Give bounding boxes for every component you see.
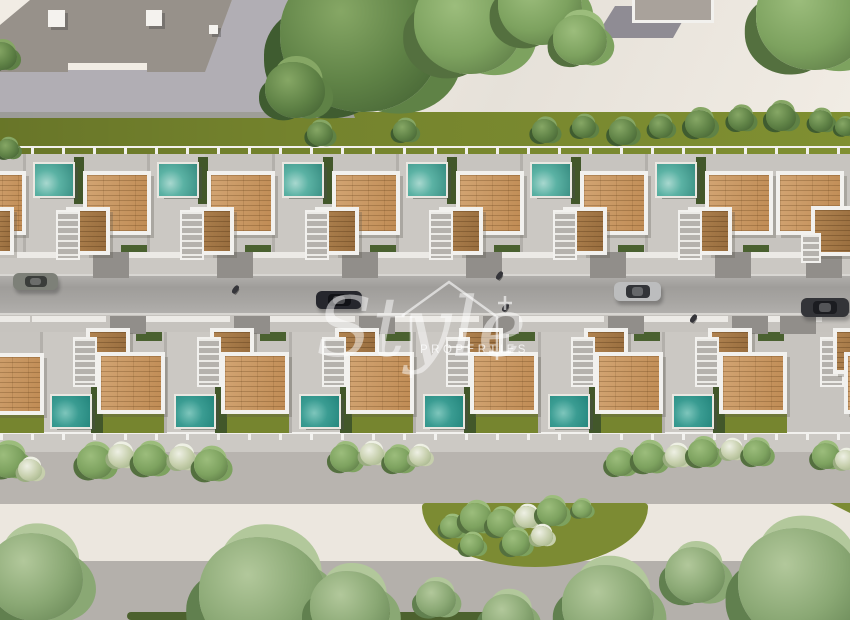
shrub <box>18 459 42 481</box>
garden-grass <box>221 413 289 433</box>
fence <box>0 146 850 154</box>
shrub <box>360 443 384 465</box>
driveway-apron <box>715 252 751 278</box>
shrub <box>460 534 484 556</box>
wood-deck <box>0 353 44 415</box>
watermark: Style PROPERTIES <box>290 250 590 380</box>
garden-grass <box>0 413 44 433</box>
car-roof <box>632 287 643 296</box>
pool <box>406 162 448 198</box>
tree <box>553 15 607 65</box>
shrub <box>606 450 634 476</box>
pool <box>655 162 697 198</box>
garden-grass <box>719 413 787 433</box>
stairs <box>73 337 97 387</box>
deck-planks <box>101 356 161 410</box>
deck-planks <box>723 356 783 410</box>
shrub <box>531 526 553 546</box>
pool <box>282 162 324 198</box>
garden-grass <box>470 413 538 433</box>
front-wall <box>0 316 30 322</box>
front-wall <box>156 316 230 322</box>
wood-deck <box>719 352 787 414</box>
wood-deck <box>844 352 850 414</box>
tree <box>265 62 325 118</box>
wood-deck <box>221 352 289 414</box>
pool <box>157 162 199 198</box>
stairs <box>197 337 221 387</box>
shrub <box>809 110 833 132</box>
pool <box>423 394 465 429</box>
pool <box>33 162 75 198</box>
front-wall <box>32 316 106 322</box>
driveway-apron <box>93 252 129 278</box>
shrub <box>537 498 567 526</box>
car <box>13 273 58 290</box>
deck-planks <box>0 211 10 251</box>
stairs <box>180 210 204 260</box>
pool <box>548 394 590 429</box>
shrub <box>416 581 456 617</box>
shrub <box>307 122 333 146</box>
stairs <box>678 210 702 260</box>
wood-deck <box>595 352 663 414</box>
shrub <box>572 500 592 518</box>
shrub <box>108 444 134 468</box>
shrub <box>393 120 417 142</box>
shrub <box>169 446 195 470</box>
front-wall <box>756 252 804 258</box>
ac-unit <box>48 10 65 27</box>
driveway-apron <box>217 252 253 278</box>
shrub <box>330 444 360 472</box>
tree <box>665 547 725 603</box>
shrub <box>688 439 718 467</box>
stairs <box>56 210 80 260</box>
ac-unit <box>146 10 162 26</box>
shrub <box>665 445 689 467</box>
driveway-apron <box>590 252 626 278</box>
pool <box>174 394 216 429</box>
watermark-caption: PROPERTIES <box>420 344 529 356</box>
shrub <box>649 116 673 138</box>
stairs <box>695 337 719 387</box>
shrub <box>685 110 715 138</box>
fence <box>0 432 850 440</box>
garden-grass <box>595 413 663 433</box>
shrub <box>766 103 796 131</box>
shrub <box>409 446 431 466</box>
shrub <box>721 440 743 460</box>
shrub <box>743 440 771 466</box>
shrub <box>609 119 637 145</box>
shrub <box>515 506 539 528</box>
shrub <box>572 116 596 138</box>
garden-grass <box>97 413 165 433</box>
tree <box>738 528 850 620</box>
pool <box>299 394 341 429</box>
pool <box>672 394 714 429</box>
shrub <box>502 530 530 556</box>
ac-unit <box>209 25 218 34</box>
shrub <box>133 444 167 476</box>
shrub <box>728 107 754 131</box>
driveway-apron <box>780 316 816 334</box>
car-roof <box>819 303 831 312</box>
deck-planks <box>599 356 659 410</box>
pavilion-roof <box>632 0 714 23</box>
car <box>801 298 849 317</box>
wood-deck <box>97 352 165 414</box>
pool <box>50 394 92 429</box>
pool <box>530 162 572 198</box>
aerial-render: Style PROPERTIES <box>0 0 850 620</box>
deck-planks <box>0 357 40 411</box>
small-deck <box>0 207 14 255</box>
watermark-script: Style <box>316 281 526 376</box>
deck-planks <box>225 356 285 410</box>
shrub <box>532 119 558 143</box>
shrub <box>384 447 412 473</box>
car-roof <box>30 278 41 285</box>
shrub <box>77 445 113 479</box>
shrub <box>0 139 19 159</box>
stairs <box>801 233 821 263</box>
car <box>614 282 661 301</box>
shrub <box>633 443 665 473</box>
shrub <box>194 449 228 481</box>
shrub <box>835 118 850 136</box>
garden-grass <box>346 413 414 433</box>
